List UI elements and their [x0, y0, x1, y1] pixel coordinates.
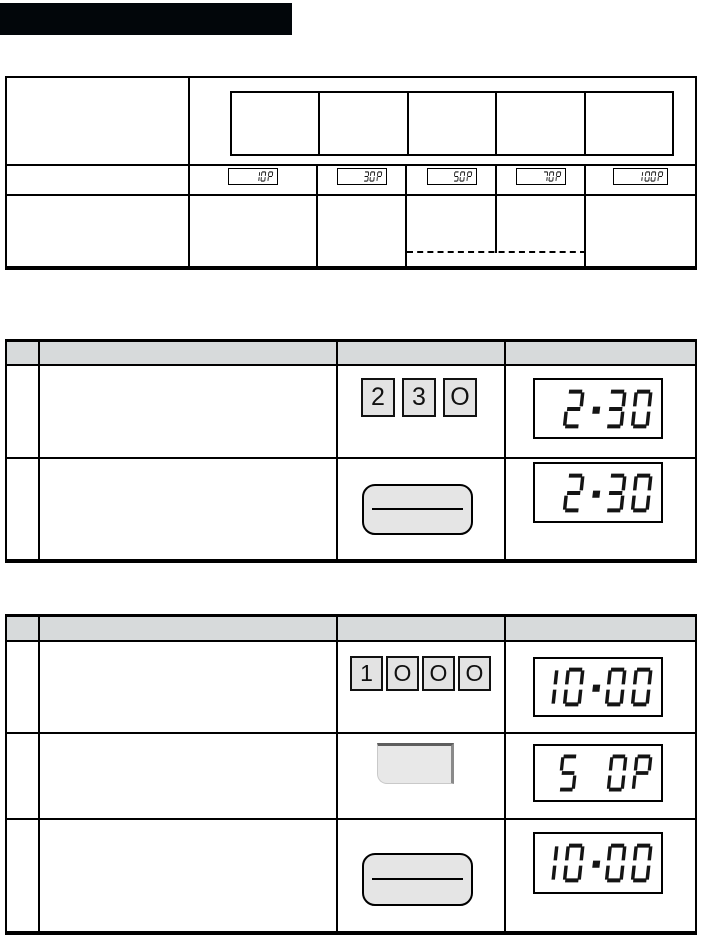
display-readout — [427, 168, 477, 185]
display-readout — [533, 744, 663, 802]
control-panel-strip — [230, 91, 674, 156]
keypad-button: 1 — [350, 656, 383, 691]
display-readout — [337, 168, 387, 185]
display-readout — [533, 462, 663, 523]
keypad-button-label: O — [430, 660, 448, 687]
table-header-row — [7, 617, 695, 642]
panel-key-cell — [495, 93, 583, 154]
divider-line — [7, 194, 695, 196]
seven-segment-text — [561, 388, 655, 430]
divider-line — [7, 818, 695, 820]
divider-line — [38, 617, 40, 931]
seven-segment-text — [637, 171, 664, 182]
panel-key-cell — [232, 93, 318, 154]
start-button — [362, 484, 473, 535]
power-level-table — [5, 76, 697, 270]
section-title-bar — [0, 3, 292, 35]
dashed-divider — [407, 251, 586, 253]
keypad-button-label: O — [466, 660, 484, 687]
keypad-button: O — [422, 656, 455, 691]
keypad-button-label: 3 — [412, 383, 426, 412]
seven-segment-text — [556, 753, 655, 793]
keypad-button-label: O — [394, 660, 412, 687]
display-readout — [533, 832, 663, 894]
keypad-button: 3 — [402, 378, 436, 417]
seven-segment-text — [561, 472, 655, 514]
display-readout — [228, 168, 278, 185]
divider-line — [495, 164, 497, 253]
divider-line — [188, 78, 190, 266]
display-readout — [533, 378, 663, 439]
power-level-button — [377, 743, 454, 784]
start-button — [362, 853, 473, 906]
display-readout — [533, 657, 663, 717]
table-header-row — [7, 342, 695, 366]
divider-line — [336, 617, 338, 931]
divider-line — [7, 164, 695, 166]
seven-segment-text — [363, 171, 383, 182]
seven-segment-text — [535, 842, 655, 884]
power-cook-table: 1 O O O — [5, 614, 697, 935]
keypad-button: O — [458, 656, 491, 691]
divider-line — [38, 342, 40, 559]
keypad-button-label: 1 — [360, 660, 373, 687]
seven-segment-text — [542, 171, 562, 182]
seven-segment-text — [453, 171, 473, 182]
display-readout — [613, 168, 668, 185]
divider-line — [336, 342, 338, 559]
manual-page: { "power_table": { "displays": ["10P", "… — [0, 0, 703, 937]
divider-line — [316, 164, 318, 266]
keypad-button: O — [386, 656, 419, 691]
divider-line — [504, 342, 506, 559]
seven-segment-text — [254, 171, 274, 182]
panel-key-cell — [407, 93, 495, 154]
keypad-button-label: O — [450, 383, 469, 412]
time-cook-table: 2 3 O — [5, 339, 697, 563]
display-readout — [516, 168, 566, 185]
divider-line — [504, 617, 506, 931]
keypad-button: O — [443, 378, 477, 417]
keypad-button: 2 — [361, 378, 395, 417]
keypad-button-label: 2 — [371, 383, 385, 412]
divider-line — [7, 732, 695, 734]
panel-key-cell — [318, 93, 406, 154]
panel-key-cell — [584, 93, 672, 154]
divider-line — [7, 457, 695, 459]
seven-segment-text — [535, 666, 655, 708]
